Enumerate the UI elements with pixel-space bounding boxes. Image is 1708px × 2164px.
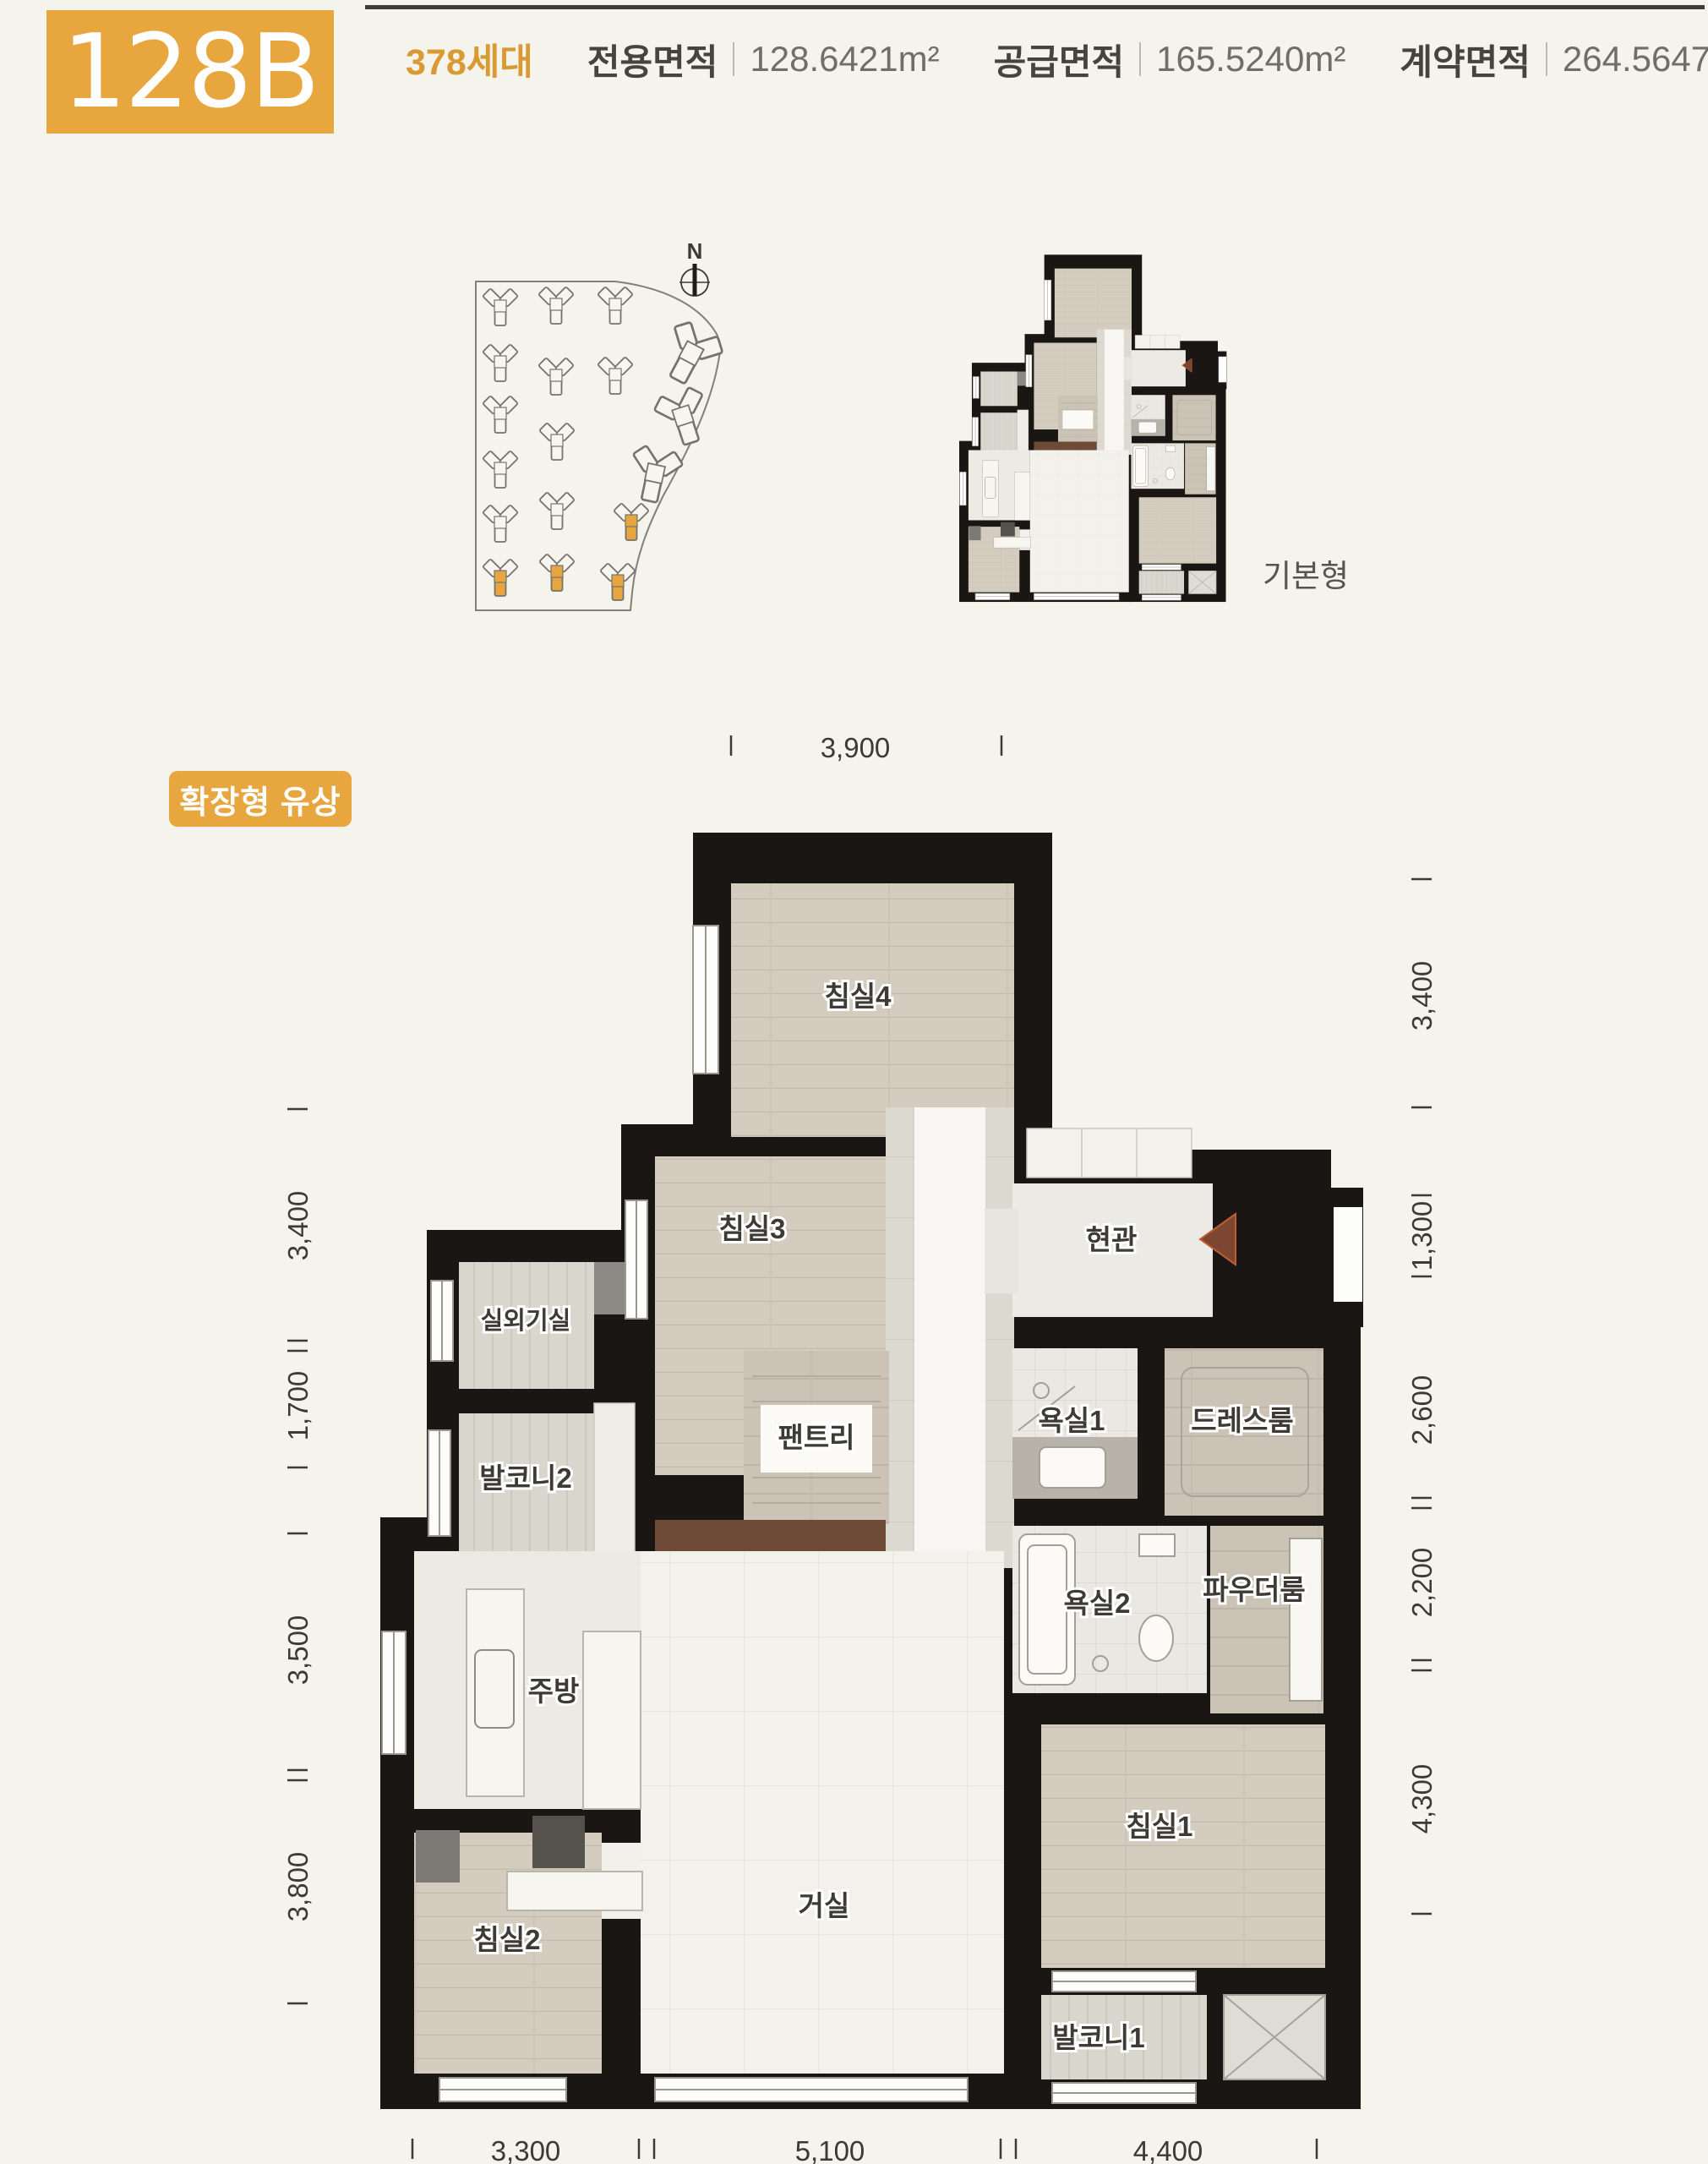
window: [382, 1631, 406, 1754]
dim-top-0: 3,900: [821, 732, 891, 763]
window: [655, 2078, 968, 2101]
room-label-powder: 파우더룸: [1203, 1574, 1305, 1605]
dim-bottom-0: 3,300: [491, 2135, 561, 2164]
dim-left-1: 1,700: [282, 1371, 314, 1441]
room-label-pantry: 팬트리: [778, 1422, 854, 1453]
dim-right-0: 3,400: [1406, 961, 1438, 1031]
dim-left-3: 3,800: [282, 1852, 314, 1922]
bath2-toilet: [1139, 1615, 1173, 1661]
dim-right-3: 2,200: [1406, 1548, 1438, 1618]
mini-floor-plan: 기본형: [959, 254, 1349, 602]
kitchen-counter-right: [583, 1631, 641, 1809]
dim-right-4: 4,300: [1406, 1764, 1438, 1834]
closet-strip: [594, 1403, 635, 1572]
room-label-entrance: 현관: [1086, 1224, 1138, 1255]
room-label-bath1: 욕실1: [1038, 1405, 1105, 1436]
site-plan: N: [476, 238, 728, 610]
dim-right-1: 1,300: [1406, 1201, 1438, 1271]
dim-left-0: 3,400: [282, 1191, 314, 1261]
dim-right-2: 2,600: [1406, 1375, 1438, 1445]
kitchen-appliance: [532, 1816, 585, 1868]
svg-text:N: N: [687, 238, 703, 264]
window: [693, 926, 718, 1074]
room-label-bedroom4: 침실4: [824, 981, 892, 1012]
room-label-bedroom3: 침실3: [718, 1213, 785, 1244]
room-living-floor: [641, 1551, 1004, 2074]
north-compass-icon: N: [679, 238, 710, 296]
kitchen-fridge: [416, 1830, 460, 1883]
window: [625, 1200, 647, 1319]
window: [439, 2078, 566, 2101]
dim-bottom-2: 4,400: [1133, 2135, 1203, 2164]
window: [1052, 1971, 1196, 1992]
bath1-sink: [1040, 1447, 1105, 1488]
mini-plan-caption: 기본형: [1263, 559, 1349, 593]
room-balcony2-floor: [459, 1413, 594, 1574]
room-label-bedroom2: 침실2: [473, 1924, 540, 1955]
room-bedroom1-floor: [1041, 1724, 1325, 1968]
entry-closet: [1027, 1128, 1192, 1178]
floor-plan-artwork: 기본형 N: [0, 0, 1708, 2164]
room-label-dressroom: 드레스룸: [1191, 1405, 1293, 1436]
room-label-balcony1: 발코니1: [1052, 2022, 1144, 2053]
window: [1052, 2083, 1196, 2103]
brochure-page: 128B 378세대 전용면적 128.6421m² 공급면적 165.5240…: [0, 0, 1708, 2164]
dim-bottom-1: 5,100: [795, 2135, 865, 2164]
room-label-living: 거실: [799, 1890, 850, 1921]
room-label-bedroom1: 침실1: [1126, 1811, 1192, 1842]
window: [431, 1281, 453, 1361]
room-label-bath2: 욕실2: [1063, 1587, 1130, 1619]
dim-left-2: 3,500: [282, 1615, 314, 1686]
room-label-acroom: 실외기실: [481, 1307, 571, 1335]
powder-counter: [1290, 1538, 1322, 1701]
entrance-opening: [985, 1209, 1018, 1293]
window: [428, 1430, 450, 1536]
room-label-kitchen: 주방: [528, 1675, 580, 1707]
hallway-runner: [914, 1107, 985, 1568]
bath2-sink: [1139, 1534, 1175, 1556]
kitchen-island: [507, 1872, 642, 1910]
site-buildings: [483, 287, 728, 600]
room-label-balcony2: 발코니2: [479, 1462, 571, 1494]
entrance-door-gap: [1334, 1207, 1362, 1302]
